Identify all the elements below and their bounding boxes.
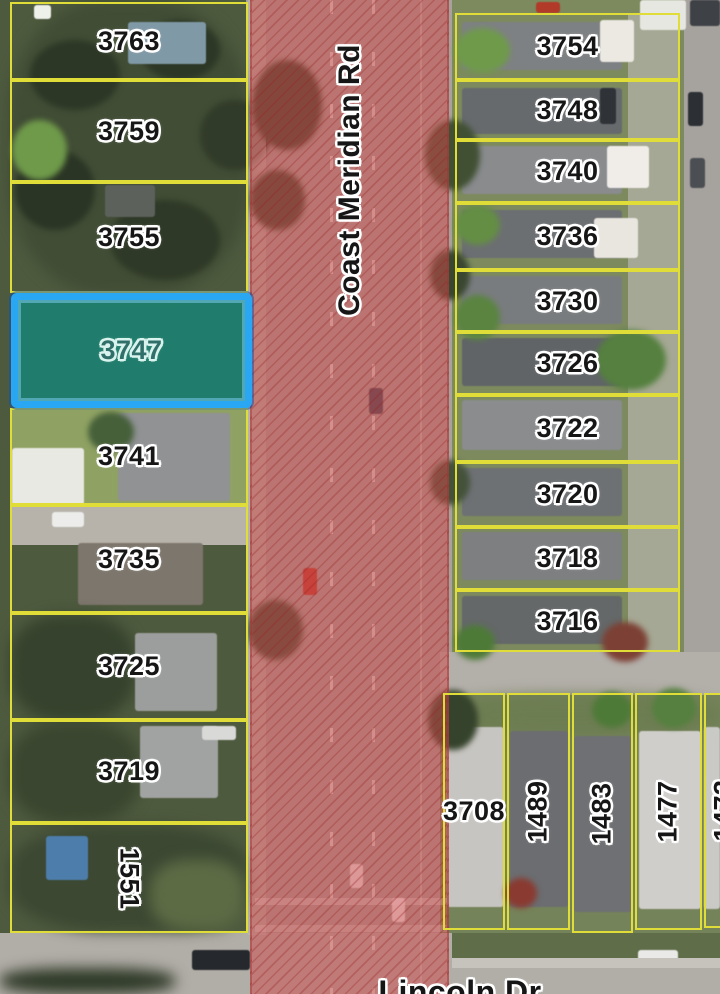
house-roof bbox=[690, 0, 720, 26]
parcel-3747-highlighted[interactable]: 3747 bbox=[11, 293, 252, 408]
parcel-3719[interactable]: 3719 bbox=[10, 720, 248, 823]
parcel-1483[interactable]: 1483 bbox=[572, 693, 633, 933]
parcel-1473[interactable]: 1473 bbox=[704, 693, 720, 928]
road-name-text: Coast Meridian Rd bbox=[335, 44, 365, 316]
parcel-3726[interactable]: 3726 bbox=[455, 332, 680, 395]
parcel-1551[interactable]: 1551 bbox=[10, 823, 248, 933]
parcel-3755[interactable]: 3755 bbox=[10, 182, 248, 293]
parcel-3754[interactable]: 3754 bbox=[455, 13, 680, 80]
car bbox=[192, 950, 250, 970]
parcel-3763[interactable]: 3763 bbox=[10, 2, 248, 80]
parcel-label: 3754 bbox=[536, 33, 598, 60]
parcel-3708[interactable]: 3708 bbox=[443, 693, 505, 930]
parcel-label: 1551 bbox=[115, 847, 142, 909]
parcel-label: 3748 bbox=[536, 97, 598, 124]
car bbox=[690, 158, 705, 188]
parcel-label: 3725 bbox=[98, 653, 160, 680]
parcel-3740[interactable]: 3740 bbox=[455, 140, 680, 203]
parcel-3741[interactable]: 3741 bbox=[10, 408, 248, 505]
parcel-3725[interactable]: 3725 bbox=[10, 613, 248, 720]
parcel-label: 1477 bbox=[655, 780, 682, 842]
parcel-label: 3720 bbox=[536, 481, 598, 508]
parcel-label: 3755 bbox=[98, 224, 160, 251]
parcel-3736[interactable]: 3736 bbox=[455, 203, 680, 270]
parcel-3722[interactable]: 3722 bbox=[455, 395, 680, 462]
parcel-3718[interactable]: 3718 bbox=[455, 527, 680, 590]
car bbox=[536, 2, 560, 13]
parcel-3748[interactable]: 3748 bbox=[455, 80, 680, 140]
parcel-3716[interactable]: 3716 bbox=[455, 590, 680, 652]
parcel-label: 3740 bbox=[536, 158, 598, 185]
parcel-label: 3719 bbox=[98, 758, 160, 785]
parcel-label: 3708 bbox=[443, 798, 505, 825]
parcel-label: 3741 bbox=[98, 443, 160, 470]
parcel-3759[interactable]: 3759 bbox=[10, 80, 248, 182]
parcel-3720[interactable]: 3720 bbox=[455, 462, 680, 527]
sidewalk bbox=[452, 958, 720, 968]
parcel-label: 3716 bbox=[536, 608, 598, 635]
parcel-label: 3759 bbox=[98, 118, 160, 145]
parcel-label: 3722 bbox=[536, 415, 598, 442]
cross-street-label: Lincoln Dr bbox=[310, 976, 610, 994]
parcel-1477[interactable]: 1477 bbox=[635, 693, 702, 930]
parcel-1489[interactable]: 1489 bbox=[507, 693, 570, 930]
bottom-green-strip bbox=[452, 933, 720, 959]
parcel-label: 3763 bbox=[98, 28, 160, 55]
parcel-label: 3730 bbox=[536, 288, 598, 315]
road-name-label: Coast Meridian Rd bbox=[330, 30, 370, 330]
highlighted-parcel-label: 3747 bbox=[100, 337, 162, 364]
cross-street-text: Lincoln Dr bbox=[378, 974, 541, 994]
parcel-3730[interactable]: 3730 bbox=[455, 270, 680, 332]
car bbox=[688, 92, 703, 126]
parcel-label: 1473 bbox=[711, 779, 720, 841]
parcel-label: 3726 bbox=[536, 350, 598, 377]
bushes bbox=[0, 968, 175, 994]
parcel-3735[interactable]: 3735 bbox=[10, 505, 248, 613]
parcel-label: 3736 bbox=[536, 223, 598, 250]
parcel-map: Coast Meridian Rd 3763 3759 3755 3741 37… bbox=[0, 0, 720, 994]
parcel-label: 1483 bbox=[589, 782, 616, 844]
parcel-label: 3735 bbox=[98, 546, 160, 573]
parcel-label: 3718 bbox=[536, 545, 598, 572]
parcel-label: 1489 bbox=[525, 780, 552, 842]
